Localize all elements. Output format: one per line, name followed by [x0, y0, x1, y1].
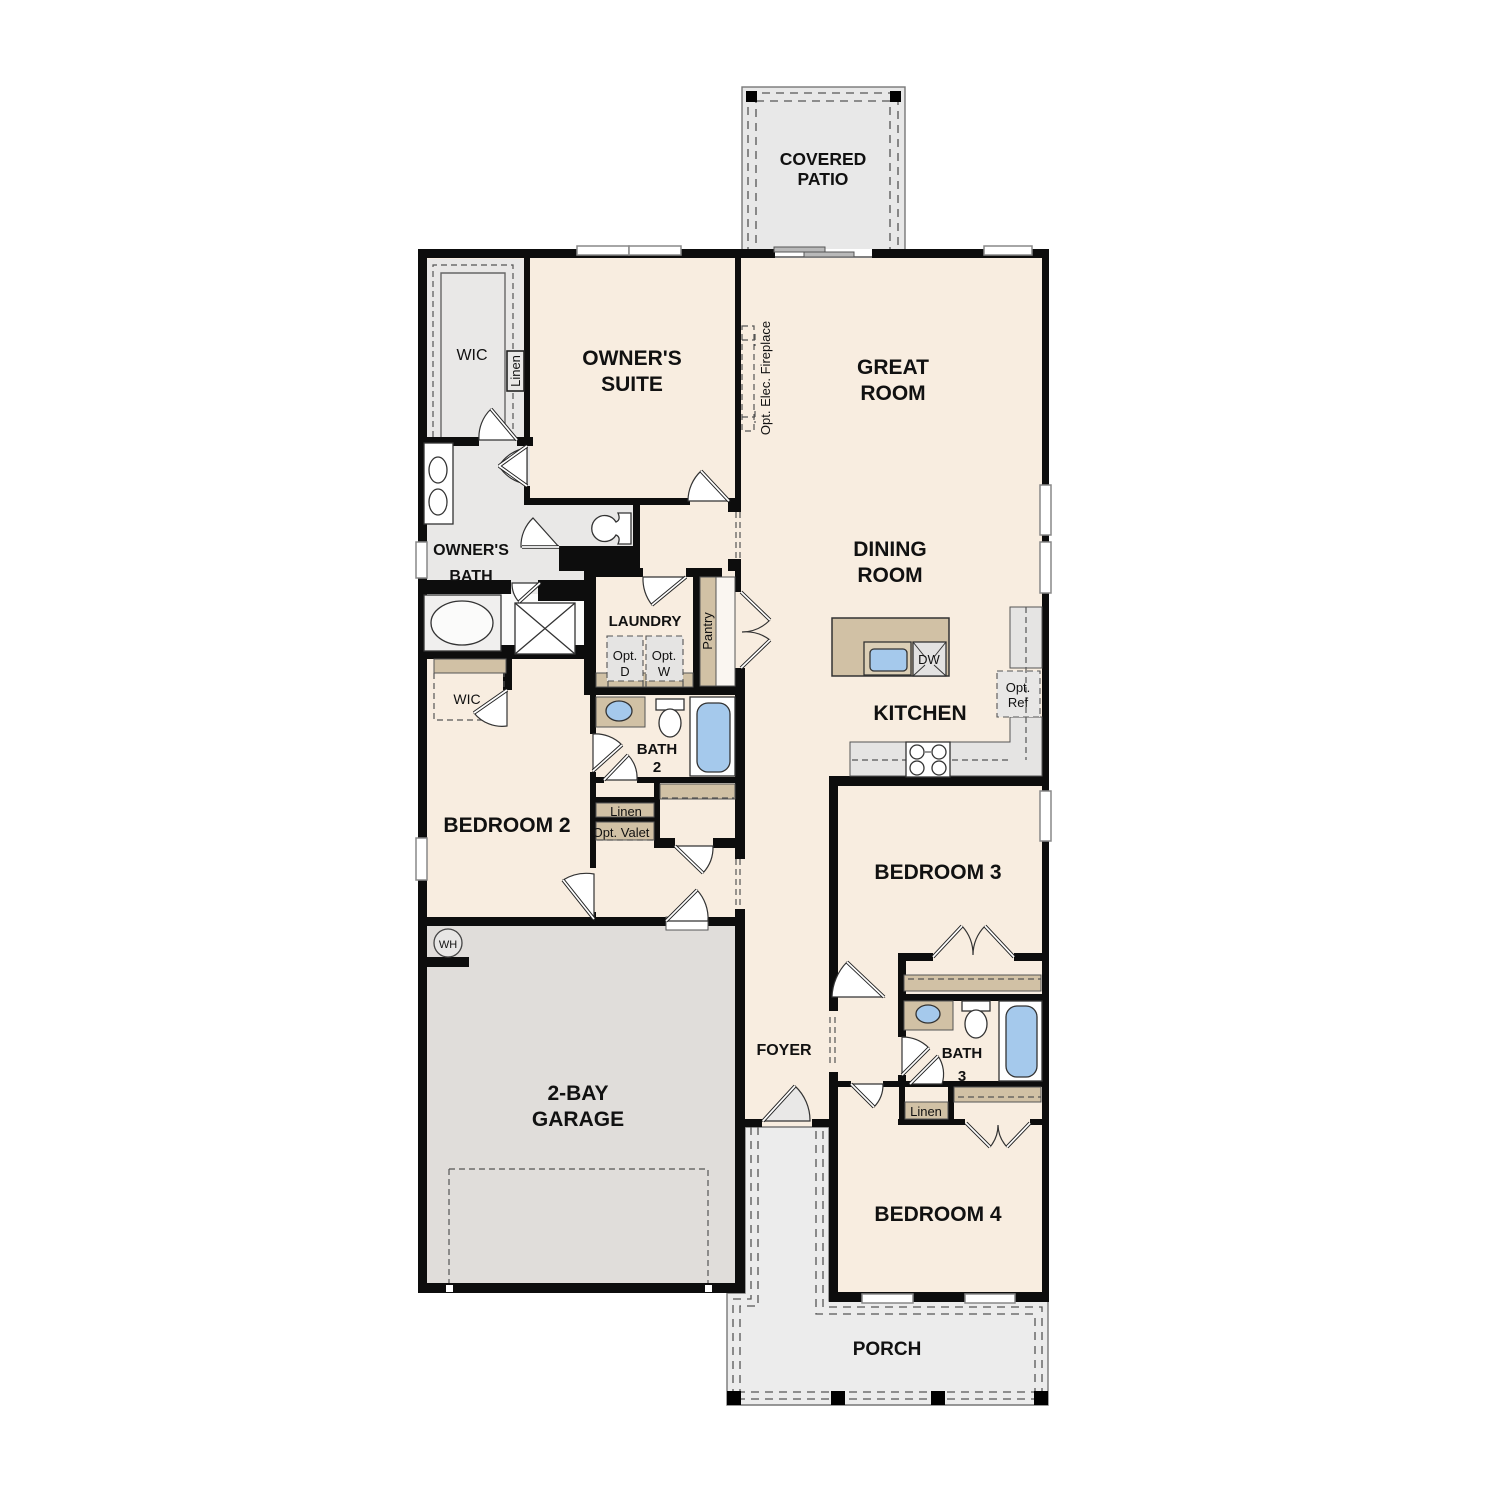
svg-text:BATH: BATH — [449, 568, 492, 585]
svg-text:GREAT: GREAT — [857, 356, 929, 379]
svg-text:DW: DW — [918, 652, 940, 667]
svg-text:W: W — [658, 664, 671, 679]
svg-text:DINING: DINING — [853, 538, 927, 561]
svg-text:PORCH: PORCH — [853, 1339, 922, 1360]
svg-text:3: 3 — [958, 1068, 966, 1085]
svg-text:BEDROOM 4: BEDROOM 4 — [874, 1203, 1002, 1226]
svg-text:Linen: Linen — [610, 804, 642, 819]
svg-text:D: D — [620, 664, 629, 679]
svg-text:BEDROOM 3: BEDROOM 3 — [874, 861, 1001, 884]
svg-text:Opt. Elec. Fireplace: Opt. Elec. Fireplace — [758, 321, 773, 435]
svg-text:BEDROOM 2: BEDROOM 2 — [443, 814, 570, 837]
svg-text:OWNER'S: OWNER'S — [433, 542, 509, 559]
svg-text:KITCHEN: KITCHEN — [873, 702, 966, 725]
svg-text:FOYER: FOYER — [756, 1042, 812, 1059]
svg-text:OWNER'S: OWNER'S — [582, 347, 682, 370]
svg-text:BATH: BATH — [942, 1045, 983, 1062]
svg-text:WIC: WIC — [453, 691, 480, 707]
svg-text:LAUNDRY: LAUNDRY — [609, 613, 682, 630]
svg-text:Pantry: Pantry — [700, 612, 715, 650]
svg-text:Ref: Ref — [1008, 695, 1029, 710]
svg-text:WIC: WIC — [456, 347, 487, 364]
svg-text:BATH: BATH — [637, 741, 678, 758]
svg-text:WH: WH — [439, 939, 457, 951]
svg-text:Opt. Valet: Opt. Valet — [593, 825, 650, 840]
svg-text:GARAGE: GARAGE — [532, 1108, 624, 1131]
svg-text:2-BAY: 2-BAY — [547, 1082, 608, 1105]
svg-text:Opt.: Opt. — [613, 648, 638, 663]
svg-text:2: 2 — [653, 759, 661, 776]
svg-text:PATIO: PATIO — [798, 169, 849, 189]
svg-text:Opt.: Opt. — [652, 648, 677, 663]
svg-text:Linen: Linen — [910, 1104, 942, 1119]
svg-text:ROOM: ROOM — [860, 382, 925, 405]
svg-text:Opt.: Opt. — [1006, 680, 1031, 695]
svg-text:COVERED: COVERED — [780, 149, 867, 169]
svg-text:Linen: Linen — [508, 355, 523, 387]
svg-text:SUITE: SUITE — [601, 373, 663, 396]
svg-text:ROOM: ROOM — [857, 564, 922, 587]
